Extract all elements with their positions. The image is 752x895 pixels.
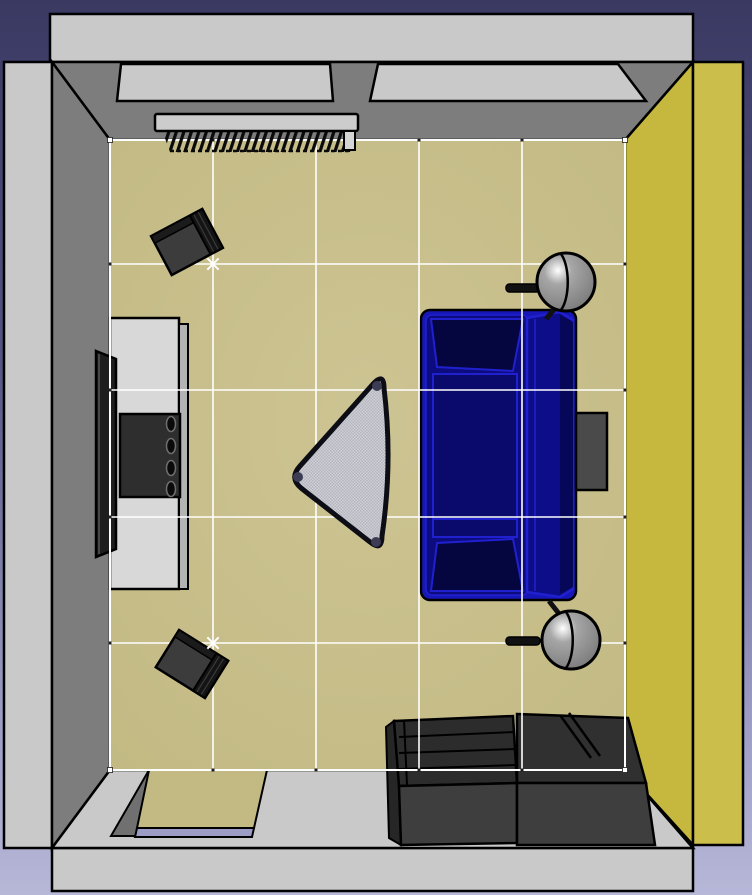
lamp-upper-arm	[506, 284, 540, 292]
coffee-table-foot	[293, 472, 303, 482]
coffee-table-foot	[371, 537, 381, 547]
door-floor	[137, 770, 267, 828]
wall-top-outer[interactable]	[50, 14, 693, 62]
radiator[interactable]	[155, 114, 358, 152]
radiator-fins	[162, 130, 356, 152]
sofa-seat	[433, 374, 517, 537]
side-table[interactable]	[576, 413, 607, 490]
radiator-end-cap	[344, 131, 355, 150]
shelf-left[interactable]	[386, 716, 517, 845]
sofa-backrest-edge	[560, 315, 573, 594]
window-left-recess[interactable]	[117, 64, 333, 101]
shelf-left-front	[399, 783, 517, 845]
wall-right-outer-yellow[interactable]	[693, 62, 743, 845]
wall-right-inner-yellow[interactable]	[625, 62, 693, 845]
sofa-armrest-bottom	[431, 539, 523, 591]
door-sill	[135, 828, 254, 837]
lamp-lower-arm	[506, 637, 540, 645]
radiator-top-bar	[155, 114, 358, 131]
coffee-table-foot	[372, 381, 382, 391]
sofa-armrest-top	[431, 319, 523, 371]
shelf-right-front	[517, 783, 655, 845]
sofa[interactable]	[421, 310, 576, 600]
wall-bottom-outer[interactable]	[52, 848, 693, 891]
wall-left-outer[interactable]	[4, 62, 52, 848]
window-right-recess[interactable]	[370, 64, 646, 101]
room-3d-view	[0, 0, 752, 895]
